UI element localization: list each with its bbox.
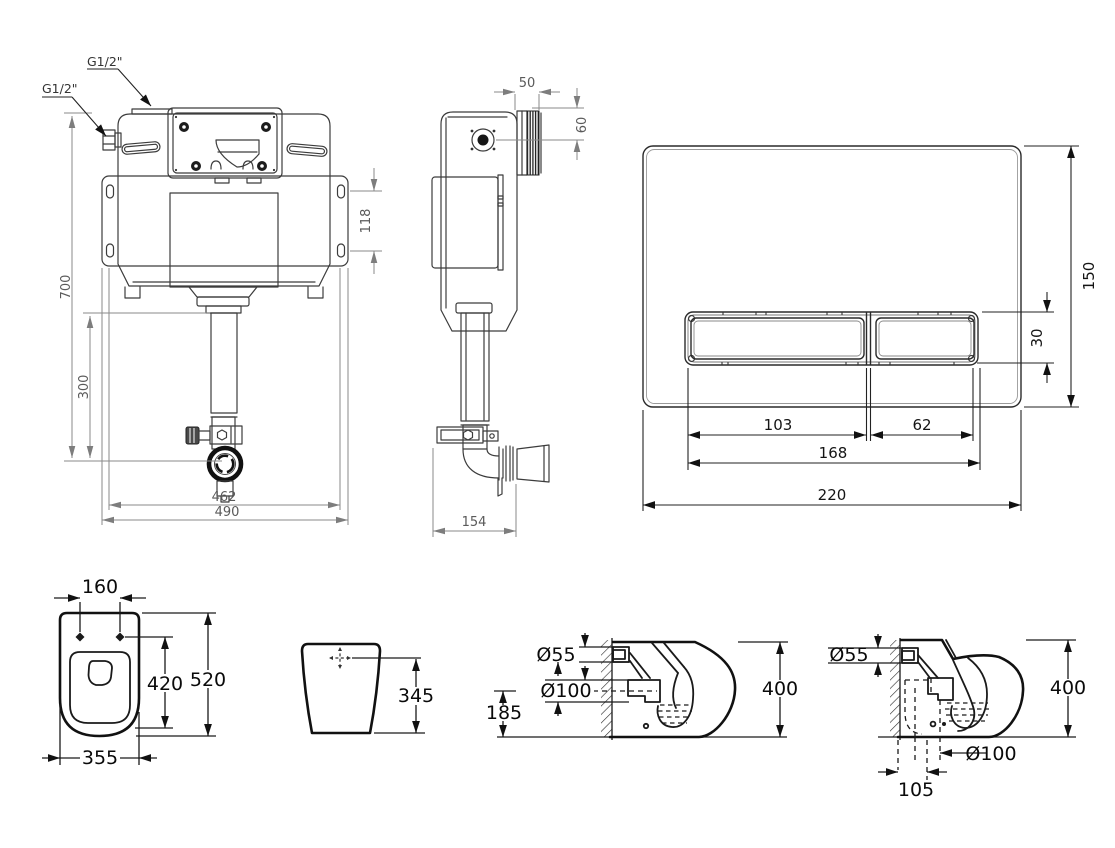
inlet-hole xyxy=(471,129,496,151)
fixing-hole-right xyxy=(116,633,125,642)
flush-pipe xyxy=(189,287,257,449)
small-flush-button[interactable] xyxy=(876,318,974,359)
trap-connector xyxy=(928,678,953,700)
pipe-bracket xyxy=(437,427,498,443)
dim-inlet-diameter: Ø55 xyxy=(536,644,575,666)
dim-inlet-diameter: Ø55 xyxy=(829,644,868,666)
pan-side-interior xyxy=(613,643,693,728)
cistern-front-view: 700 300 118 462 490 G1/2" G1/2" xyxy=(42,54,382,525)
pan-drain xyxy=(89,661,113,685)
top-inlet-boss xyxy=(132,109,172,114)
dim-flush-mark-height: 345 xyxy=(398,685,434,707)
pan-rim xyxy=(70,652,130,723)
dim-small-button-width: 62 xyxy=(912,416,931,434)
dim-cistern-height: 700 xyxy=(59,275,74,300)
dim-button-height: 30 xyxy=(1028,328,1046,347)
dim-fixing-hole-spacing: 160 xyxy=(82,576,118,598)
technical-drawing-sheet: 700 300 118 462 490 G1/2" G1/2" xyxy=(0,0,1115,848)
dim-outlet-center-height: 300 xyxy=(77,375,92,400)
pan-side-wall-outlet-view: Ø55 Ø100 185 400 xyxy=(483,633,801,740)
pan-top-view: 160 420 520 355 xyxy=(42,576,227,769)
dim-pan-height: 400 xyxy=(762,678,798,700)
pan-side-wall-dimensions: Ø55 Ø100 185 400 xyxy=(483,633,801,737)
pan-back-view: 345 xyxy=(302,644,436,733)
lifting-slot-right xyxy=(287,143,328,156)
pan-side-outline xyxy=(898,640,1023,737)
foot-left xyxy=(125,287,140,298)
cistern-side-view: 50 60 154 xyxy=(432,76,590,537)
flush-plate-body xyxy=(643,146,1021,407)
drawing-canvas: 700 300 118 462 490 G1/2" G1/2" xyxy=(0,0,1115,848)
access-box xyxy=(168,108,282,183)
dim-large-button-width: 103 xyxy=(764,416,793,434)
bracket-plate xyxy=(102,176,348,266)
dim-pan-width: 355 xyxy=(82,747,118,769)
label-top-inlet-thread: G1/2" xyxy=(87,54,123,69)
dim-outlet-axis-height: 185 xyxy=(486,702,522,724)
dim-connector-height: 60 xyxy=(575,117,590,134)
flush-inlet-mark xyxy=(329,647,351,669)
dim-buttons-total-width: 168 xyxy=(819,444,848,462)
flush-plate-panel xyxy=(643,146,1021,407)
hidden-outlet-elbow xyxy=(905,678,940,762)
button-recess xyxy=(685,312,978,365)
cistern-front-body xyxy=(102,108,348,502)
dim-inner-width: 462 xyxy=(212,490,237,505)
dim-plate-width: 220 xyxy=(818,486,847,504)
cistern-side-body xyxy=(432,111,549,496)
flush-plate-view: 103 62 168 220 150 30 xyxy=(643,146,1098,511)
dim-connector-depth: 50 xyxy=(519,76,536,91)
wall-hatch xyxy=(890,640,900,737)
foot-right xyxy=(308,287,323,298)
large-flush-button[interactable] xyxy=(691,318,864,359)
dim-outlet-wall-distance: 105 xyxy=(898,779,934,801)
dim-plate-height: 150 xyxy=(1080,262,1098,291)
wall-hatch xyxy=(601,640,612,737)
recess-tick-marks xyxy=(722,312,954,365)
frame-profile xyxy=(432,177,498,268)
dim-outlet-diameter: Ø100 xyxy=(540,680,591,702)
pan-back-dimensions: 345 xyxy=(352,658,436,733)
dim-total-length: 520 xyxy=(190,669,226,691)
dim-pan-height: 400 xyxy=(1050,677,1086,699)
dim-bowl-length: 420 xyxy=(147,673,183,695)
angle-valve xyxy=(186,426,242,444)
fixing-hole-left xyxy=(76,633,85,642)
dim-outlet-diameter: Ø100 xyxy=(965,743,1016,765)
bellows-connector xyxy=(517,111,541,175)
service-opening xyxy=(170,193,278,287)
lifting-slot-left xyxy=(122,141,161,154)
dim-cistern-depth: 154 xyxy=(462,515,487,530)
pan-side-floor-outlet-view: Ø55 400 Ø100 105 xyxy=(828,634,1089,801)
shield-emblem xyxy=(216,140,259,167)
dim-overall-width: 490 xyxy=(215,505,240,520)
label-side-inlet-thread: G1/2" xyxy=(42,81,78,96)
outlet-elbow xyxy=(463,445,549,496)
dim-bracket-hole-spacing: 118 xyxy=(359,209,374,234)
